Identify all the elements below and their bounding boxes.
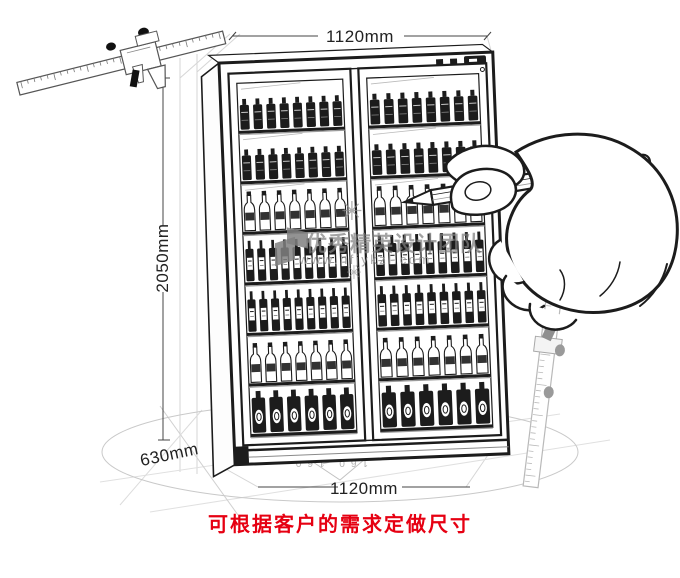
watermark-url-text: www.hfjykzl.com [299, 252, 432, 267]
custom-size-note: 可根据客户的需求定做尺寸 [0, 508, 680, 537]
dimension-depth-label: 630mm [138, 439, 200, 470]
product-dimension-diagram: 160 160 1120mm 2050mm 630mm 1120mm [0, 0, 680, 578]
caliper-knob-icon [105, 41, 117, 51]
dimension-left-label: 2050mm [153, 223, 172, 292]
hand-back [507, 134, 678, 312]
dimension-bottom-label: 1120mm [330, 479, 398, 498]
watermark-flake-icon: ✳ [346, 262, 362, 285]
line-art-canvas: 160 160 1120mm 2050mm 630mm 1120mm [0, 0, 680, 578]
watermark-flake-icon: ✳ [341, 196, 363, 227]
caliper-illustration [11, 9, 232, 121]
dimension-top-label: 1120mm [326, 27, 394, 46]
